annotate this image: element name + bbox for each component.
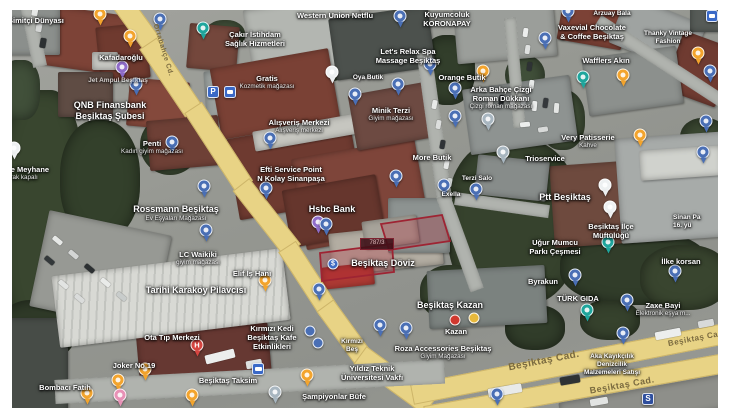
place-label[interactable]: Thanky VintageFashion <box>644 30 692 46</box>
place-label[interactable]: Yıldız TeknikÜniversitesi Vakfı <box>341 364 403 382</box>
place-label[interactable]: Byrakun <box>528 277 558 286</box>
place-label[interactable]: Uğur MumcuParkı Çeşmesi <box>529 238 580 256</box>
frame-top <box>0 0 730 10</box>
bus-stop-icon[interactable] <box>252 363 264 375</box>
place-pin[interactable] <box>449 82 462 103</box>
frame-right <box>718 0 730 420</box>
place-label[interactable]: Kafadaroğlu <box>99 53 143 62</box>
place-label[interactable]: Rossmann BeşiktaşEv Eşyaları Mağazası <box>133 204 219 222</box>
place-label[interactable]: Trioservice <box>525 154 565 163</box>
place-pin-light[interactable] <box>599 179 612 200</box>
satellite-map[interactable]: 787/3 P$HS Simitçi DünyasıKafadaroğluJet… <box>0 0 730 420</box>
vehicle <box>520 122 530 128</box>
place-label[interactable]: KırmızıBeş <box>341 338 363 354</box>
cafe-dot-icon[interactable] <box>469 313 480 324</box>
place-label[interactable]: Hsbc Bank <box>309 204 356 215</box>
place-label[interactable]: Very PatisserieKahve <box>561 133 614 150</box>
place-pin[interactable] <box>260 182 273 203</box>
place-pin[interactable] <box>400 322 413 343</box>
place-label[interactable]: Simitçi Dünyası <box>8 16 64 25</box>
place-pin[interactable] <box>700 115 713 136</box>
place-pin-muted[interactable] <box>269 386 282 407</box>
place-label[interactable]: Beşiktaş Döviz <box>351 258 415 269</box>
food-drink-pin[interactable] <box>617 69 630 90</box>
place-label[interactable]: Wafflers Akın <box>582 56 629 65</box>
place-label[interactable]: Tarihi Karaköy Pilavcısı <box>146 285 246 296</box>
place-label[interactable]: Aka KayıkçılıkDenizcilikMalzemeleri Satı… <box>584 353 640 376</box>
place-label[interactable]: Bombacı Fatih <box>39 383 91 392</box>
place-pin[interactable] <box>669 265 682 286</box>
place-pin[interactable] <box>449 110 462 131</box>
place-pin[interactable] <box>198 180 211 201</box>
place-label[interactable]: Elif İş Hanı <box>233 269 271 278</box>
place-label[interactable]: Let's Relax SpaMassage Beşiktaş <box>376 47 441 65</box>
place-label[interactable]: KuyumcolukKORONAPAY <box>423 10 471 28</box>
place-pin[interactable] <box>313 283 326 304</box>
place-label[interactable]: Vaxevial Chocolate& Coffee Beşiktaş <box>558 23 626 41</box>
parking-icon[interactable]: P <box>207 86 219 98</box>
place-pin[interactable] <box>470 183 483 204</box>
place-pin-pink[interactable] <box>114 389 127 410</box>
place-label[interactable]: Beşiktaş İlçeMüftülüğü <box>588 222 633 240</box>
building-roof <box>427 265 548 329</box>
place-label[interactable]: QNB FinansbankBeşiktaş Şubesi <box>74 100 147 122</box>
place-label[interactable]: Kırmızı KediBeşiktaş KafeEtkinlikleri <box>247 324 296 351</box>
place-label[interactable]: LC Waikikigiyim mağazası <box>176 250 220 267</box>
place-pin-muted[interactable] <box>482 113 495 134</box>
place-label[interactable]: Arzuay Bala <box>593 10 630 18</box>
food-drink-pin[interactable] <box>186 389 199 410</box>
place-label[interactable]: Oya Butik <box>353 74 383 82</box>
place-label[interactable]: Minik TerziGiyim mağazası <box>368 106 413 123</box>
attraction-pin[interactable] <box>577 71 590 92</box>
place-pin[interactable] <box>704 65 717 86</box>
place-label[interactable]: Ptt Beşiktaş <box>539 192 591 203</box>
place-pin[interactable] <box>320 218 333 239</box>
place-label[interactable]: Jet Ampul Beşiktaş <box>88 77 148 85</box>
place-label[interactable]: Orange Butik <box>438 73 485 82</box>
place-label[interactable]: Ota Tıp Merkezi <box>144 333 199 342</box>
place-pin[interactable] <box>617 327 630 348</box>
place-pin-light[interactable] <box>326 66 339 87</box>
place-pin[interactable] <box>390 170 403 191</box>
place-label[interactable]: Beşiktaş Taksim <box>199 376 257 385</box>
frame-left <box>0 0 12 420</box>
food-drink-pin[interactable] <box>301 369 314 390</box>
place-dot-icon[interactable] <box>313 338 324 349</box>
place-pin[interactable] <box>394 10 407 31</box>
transit-stop-icon[interactable]: S <box>642 393 654 405</box>
food-drink-pin[interactable] <box>124 30 137 51</box>
place-pin[interactable] <box>374 319 387 340</box>
parcel-id-badge: 787/3 <box>360 238 394 250</box>
building-roof <box>639 145 723 181</box>
place-label[interactable]: Terzi Salo <box>462 175 492 183</box>
place-pin[interactable] <box>264 132 277 153</box>
place-dot-icon[interactable] <box>305 326 316 337</box>
place-label[interactable]: Efti Service PointN Kolay Sinanpaşa <box>257 165 325 183</box>
place-label[interactable]: Western Union Netflu <box>297 11 373 20</box>
attraction-pin[interactable] <box>197 22 210 43</box>
photo-icon[interactable] <box>224 86 236 98</box>
place-label[interactable]: Arka Bahçe ÇizgiRoman DükkanıÇizgi roman… <box>470 85 533 111</box>
place-label[interactable]: Sinan Pa16. yü <box>673 214 700 230</box>
place-pin-muted[interactable] <box>497 146 510 167</box>
place-label[interactable]: Kazan <box>445 327 467 336</box>
place-pin[interactable] <box>621 294 634 315</box>
place-label[interactable]: İlke korsan <box>661 257 700 266</box>
attraction-pin[interactable] <box>581 304 594 325</box>
place-pin[interactable] <box>697 146 710 167</box>
place-label[interactable]: Joker No 19 <box>113 361 156 370</box>
currency-exchange-icon[interactable]: $ <box>328 259 339 270</box>
place-label[interactable]: Şampiyonlar Büfe <box>302 392 366 401</box>
place-pin-light[interactable] <box>604 201 617 222</box>
place-pin[interactable] <box>539 32 552 53</box>
restaurant-dot-icon[interactable] <box>450 315 461 326</box>
place-label[interactable]: TÜRK GIDA <box>557 294 599 303</box>
vehicle <box>554 103 560 113</box>
place-label[interactable]: Alışveriş MerkeziAlışveriş merkezi <box>269 118 330 135</box>
photo-icon[interactable] <box>706 10 718 22</box>
place-pin[interactable] <box>349 88 362 109</box>
place-pin[interactable] <box>491 388 504 409</box>
frame-bottom <box>0 408 730 420</box>
place-label[interactable]: PentiKadın giyim mağazası <box>121 139 183 156</box>
food-drink-pin[interactable] <box>94 8 107 29</box>
screenshot-frame: 787/3 P$HS Simitçi DünyasıKafadaroğluJet… <box>0 0 730 420</box>
place-label[interactable]: Exella <box>442 191 461 199</box>
place-pin[interactable] <box>392 78 405 99</box>
place-pin[interactable] <box>200 224 213 245</box>
place-label[interactable]: Roza Accessories BeşiktaşGiyim Mağazası <box>395 344 492 361</box>
place-label[interactable]: More Butik <box>413 153 452 162</box>
place-label[interactable]: GratisKozmetik mağazası <box>240 74 295 91</box>
place-pin[interactable] <box>569 269 582 290</box>
place-label[interactable]: Beşiktaş Kazan <box>417 300 483 311</box>
food-drink-pin[interactable] <box>634 129 647 150</box>
place-label[interactable]: Zaxe BayiElektronik eşya m... <box>636 301 691 318</box>
place-label[interactable]: Çakır İstihdamSağlık Hizmetleri <box>225 30 285 48</box>
